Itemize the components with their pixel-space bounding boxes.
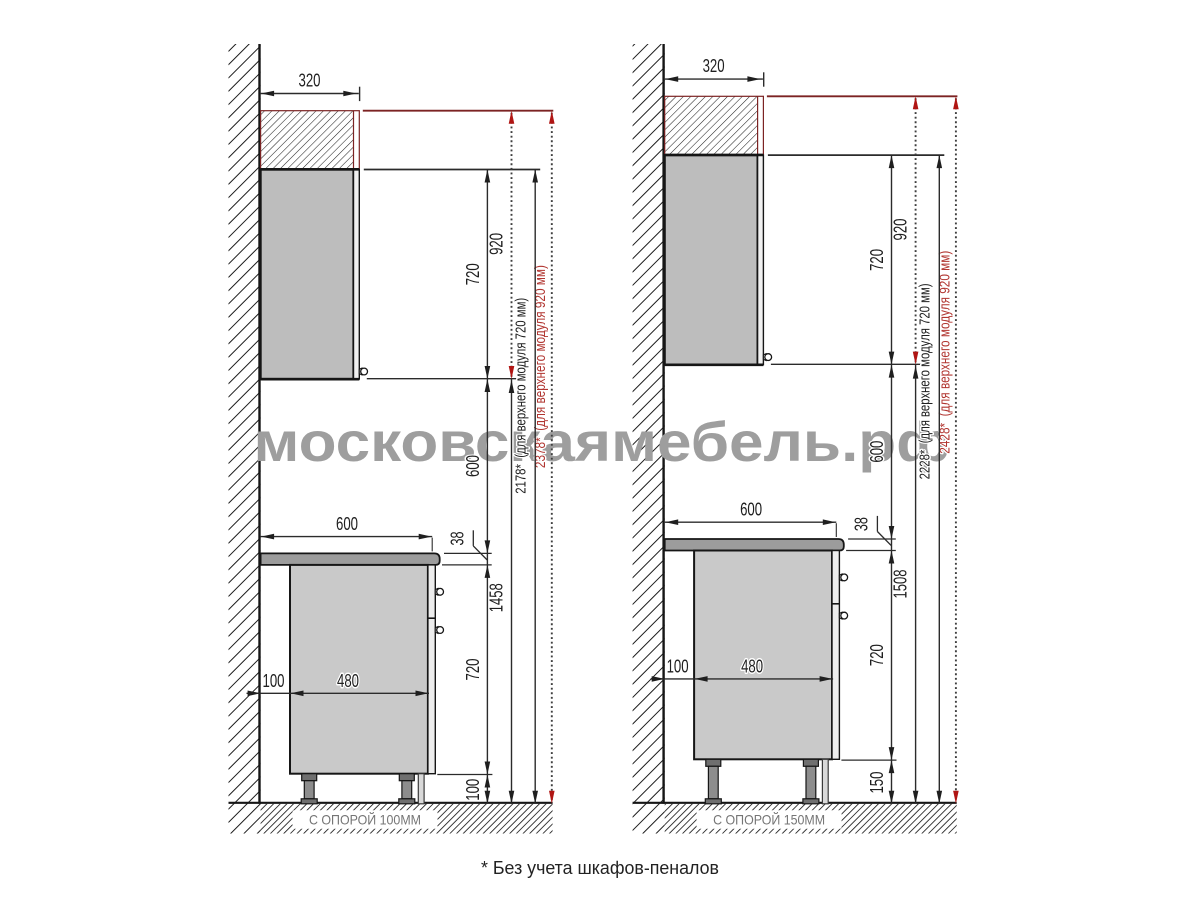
svg-text:600: 600 (740, 499, 762, 519)
svg-text:920: 920 (487, 233, 507, 255)
svg-text:С ОПОРОЙ 150ММ: С ОПОРОЙ 150ММ (713, 810, 825, 827)
svg-text:1458: 1458 (487, 583, 507, 612)
svg-text:38: 38 (852, 517, 872, 531)
svg-text:600: 600 (336, 514, 358, 534)
svg-text:480: 480 (741, 656, 763, 676)
svg-text:2228* (для верхнего модуля 72: 2228* (для верхнего модуля 720 мм) (918, 283, 934, 479)
svg-text:38: 38 (448, 532, 468, 546)
svg-text:100: 100 (667, 656, 689, 676)
svg-text:1508: 1508 (891, 570, 911, 599)
svg-text:480: 480 (337, 671, 359, 691)
svg-text:720: 720 (867, 644, 887, 666)
svg-text:320: 320 (299, 70, 321, 90)
svg-text:100: 100 (463, 779, 483, 801)
svg-text:720: 720 (463, 263, 483, 285)
svg-text:2178* (для верхнего модуля 72: 2178* (для верхнего модуля 720 мм) (514, 298, 530, 494)
svg-text:московскаямебель.рф: московскаямебель.рф (254, 411, 951, 473)
svg-text:* Без учета шкафов-пеналов: * Без учета шкафов-пеналов (481, 858, 719, 878)
svg-text:150: 150 (867, 772, 887, 794)
svg-text:320: 320 (703, 56, 725, 76)
svg-text:100: 100 (263, 671, 285, 691)
svg-text:600: 600 (463, 455, 483, 477)
svg-text:600: 600 (867, 441, 887, 463)
svg-text:720: 720 (867, 249, 887, 271)
svg-text:С ОПОРОЙ 100ММ: С ОПОРОЙ 100ММ (309, 810, 421, 827)
svg-text:720: 720 (463, 659, 483, 681)
svg-text:920: 920 (891, 219, 911, 241)
